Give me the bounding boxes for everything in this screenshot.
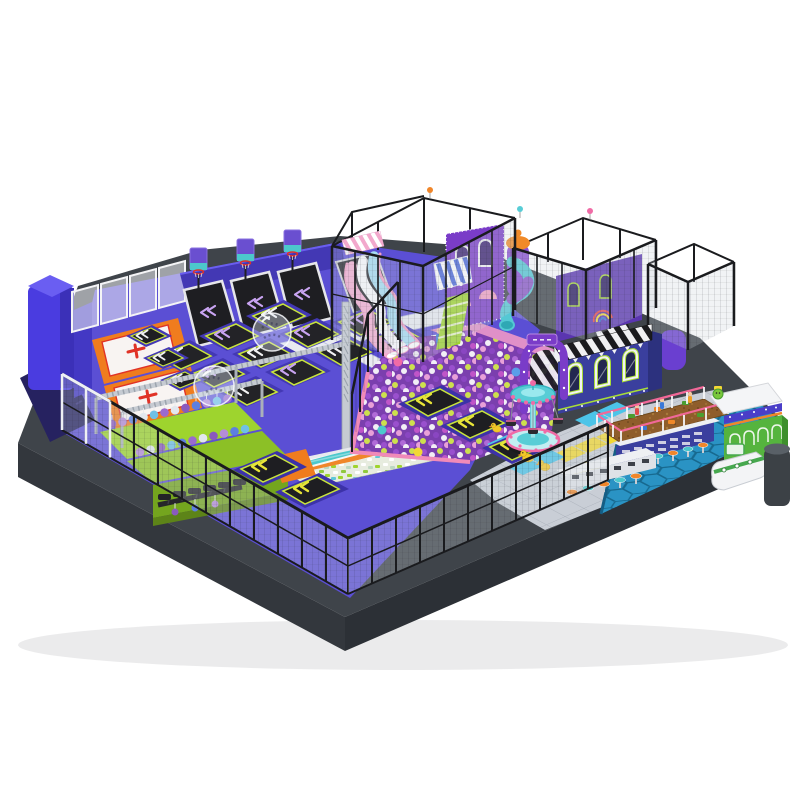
child-figure <box>688 392 692 403</box>
playground-render <box>0 0 800 800</box>
corner-pillar <box>764 444 790 507</box>
arch-sign <box>527 334 557 345</box>
kiosk-mascot <box>713 386 723 399</box>
zorb-bubble <box>253 313 291 351</box>
carousel-seat <box>506 420 516 426</box>
ground-shadow <box>18 620 788 670</box>
product-render-canvas <box>0 0 800 800</box>
carousel-seat <box>528 428 538 434</box>
zorb-bubble <box>194 366 234 406</box>
carousel-seat <box>553 418 563 424</box>
